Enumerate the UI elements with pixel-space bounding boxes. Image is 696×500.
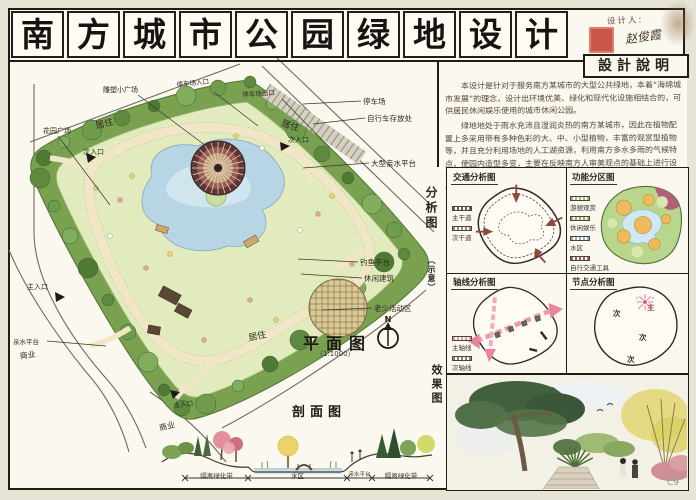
node-marker: 主 xyxy=(647,302,655,312)
analysis-grid: 交通分析图 主干道次干道 功能分区图 游憩观赏休闲娱乐水区自行交通工具 轴线分析… xyxy=(446,167,689,374)
section-heading: 剖面图 xyxy=(292,401,346,420)
title-character: 计 xyxy=(515,11,568,58)
red-seal xyxy=(589,27,614,53)
title-character: 方 xyxy=(67,11,120,58)
axis-legend: 主轴线次轴线 xyxy=(452,336,472,376)
legend-item: 次干道 xyxy=(452,226,472,242)
legend-label: 次干道 xyxy=(452,232,472,242)
node-marker: 次 xyxy=(613,308,621,318)
title-character: 城 xyxy=(123,11,176,58)
legend-swatch xyxy=(452,226,472,231)
traffic-legend: 主干道次干道 xyxy=(452,206,472,246)
legend-item: 主轴线 xyxy=(452,336,472,352)
title-character: 市 xyxy=(179,11,232,58)
corner-watermark: C9 xyxy=(667,478,679,488)
board-title: 南方城市公园绿地设计 xyxy=(11,11,568,58)
legend-swatch xyxy=(452,336,472,341)
designer-block: 设计人: 赵俊霞 xyxy=(585,10,687,54)
analysis-side-sublabel: （示意） xyxy=(426,256,437,292)
axis-analysis-map xyxy=(467,282,565,370)
analysis-side-label: 分析图 xyxy=(423,186,440,231)
traffic-analysis-title: 交通分析图 xyxy=(451,171,498,185)
design-board: { "board": { "title_chars": ["南","方","城"… xyxy=(0,0,696,500)
legend-label: 自行交通工具 xyxy=(570,262,609,272)
traffic-analysis-map xyxy=(473,180,567,272)
legend-label: 游憩观赏 xyxy=(570,202,609,212)
title-character: 地 xyxy=(403,11,456,58)
legend-swatch xyxy=(452,356,472,361)
title-character: 公 xyxy=(235,11,288,58)
node-marker: 次 xyxy=(639,332,647,342)
legend-item: 休闲娱乐 xyxy=(570,216,609,232)
legend-item: 水区 xyxy=(570,236,609,252)
spec-heading: 設計說明 xyxy=(583,54,689,78)
node-analysis-map: 主次次次 xyxy=(585,280,685,372)
legend-label: 水区 xyxy=(570,242,609,252)
description-paragraph: 本设计是针对于服务南方某城市的大型公共绿地，本着“海绵城市发展”的理念，设计出环… xyxy=(445,79,683,118)
plan-scale: （1:1000） xyxy=(316,349,355,359)
title-character: 南 xyxy=(11,11,64,58)
designer-signature: 赵俊霞 xyxy=(624,26,662,48)
function-zoning-title: 功能分区图 xyxy=(570,171,617,185)
legend-label: 休闲娱乐 xyxy=(570,222,609,232)
title-character: 设 xyxy=(459,11,512,58)
node-analysis-title: 节点分析图 xyxy=(570,276,617,290)
legend-item: 次轴线 xyxy=(452,356,472,372)
legend-item: 主干道 xyxy=(452,206,472,222)
function-legend: 游憩观赏休闲娱乐水区自行交通工具 xyxy=(570,196,609,276)
effect-rendering xyxy=(446,374,689,491)
node-marker: 次 xyxy=(627,354,635,364)
legend-swatch xyxy=(570,216,590,221)
legend-item: 自行交通工具 xyxy=(570,256,609,272)
title-character: 园 xyxy=(291,11,344,58)
legend-swatch xyxy=(570,256,590,261)
grid-divider-horizontal xyxy=(447,273,688,274)
legend-item: 游憩观赏 xyxy=(570,196,609,212)
legend-label: 次轴线 xyxy=(452,362,472,372)
legend-label: 主轴线 xyxy=(452,342,472,352)
designer-label: 设计人: xyxy=(607,13,644,27)
legend-swatch xyxy=(570,196,590,201)
effect-side-label: 效果图 xyxy=(428,364,444,406)
title-character: 绿 xyxy=(347,11,400,58)
legend-label: 主干道 xyxy=(452,212,472,222)
legend-swatch xyxy=(452,206,472,211)
axis-analysis-title: 轴线分析图 xyxy=(451,276,498,290)
legend-swatch xyxy=(570,236,590,241)
effect-scene xyxy=(447,375,687,489)
